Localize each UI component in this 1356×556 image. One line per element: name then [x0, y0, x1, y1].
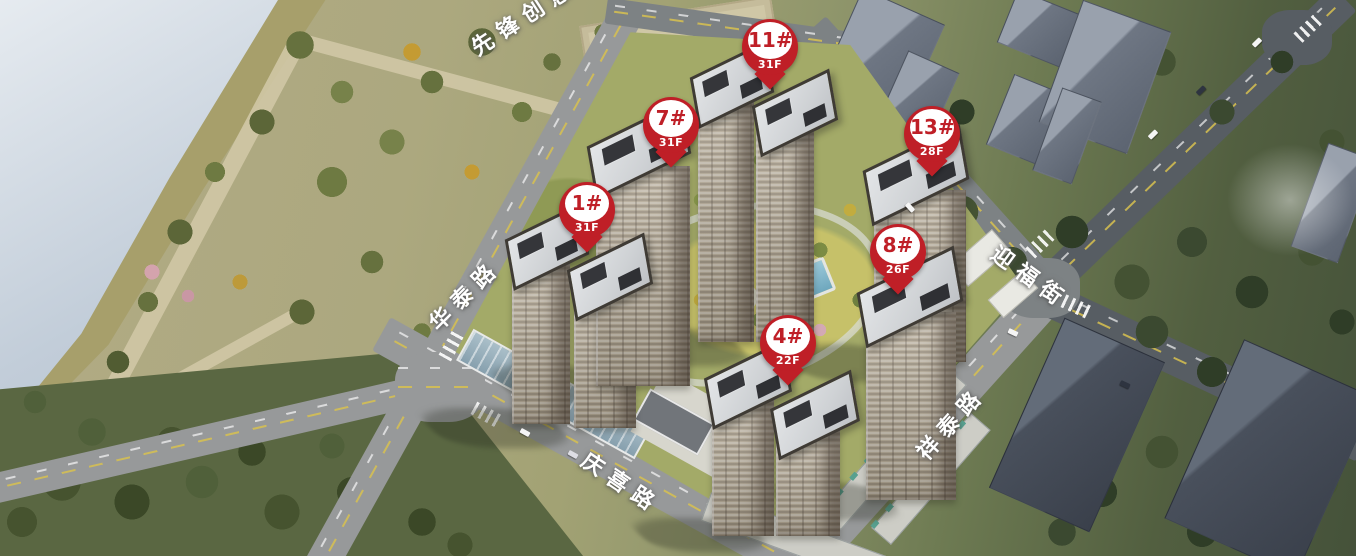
- building-pin[interactable]: 11# 31F: [742, 19, 798, 99]
- car: [1252, 37, 1263, 48]
- pin-floor-count: 28F: [904, 145, 960, 158]
- pin-building-number: 13#: [910, 109, 954, 146]
- masterplan-aerial-scene: 先锋创意 华泰路 迎福街 祥泰路 庆喜路 1# 31F 7# 31F 11# 3…: [0, 0, 1356, 556]
- pin-head: 13# 28F: [904, 106, 960, 162]
- pin-floor-count: 31F: [742, 58, 798, 71]
- park-path: [298, 33, 562, 116]
- pin-building-number: 11#: [748, 22, 792, 59]
- pin-inner-circle: 13#: [910, 109, 954, 146]
- pin-inner-circle: 1#: [565, 185, 609, 222]
- car: [1148, 129, 1159, 140]
- pin-head: 1# 31F: [559, 182, 615, 238]
- building-pin[interactable]: 1# 31F: [559, 182, 615, 262]
- tower-11-facade: [756, 130, 814, 342]
- pin-inner-circle: 7#: [649, 100, 693, 137]
- street-name-label: 先锋创意: [464, 0, 582, 62]
- building-pin[interactable]: 8# 26F: [870, 224, 926, 304]
- pin-inner-circle: 8#: [876, 227, 920, 264]
- pin-head: 7# 31F: [643, 97, 699, 153]
- building-pin[interactable]: 7# 31F: [643, 97, 699, 177]
- tower-11-facade: [698, 102, 754, 342]
- pin-floor-count: 26F: [870, 263, 926, 276]
- pin-floor-count: 22F: [760, 354, 816, 367]
- pin-inner-circle: 4#: [766, 318, 810, 355]
- pin-building-number: 8#: [876, 227, 920, 264]
- pin-building-number: 1#: [565, 185, 609, 222]
- crosswalk: [1025, 228, 1056, 259]
- tower-1-facade: [512, 264, 570, 424]
- building-pin[interactable]: 4# 22F: [760, 315, 816, 395]
- pin-inner-circle: 11#: [748, 22, 792, 59]
- building-pin[interactable]: 13# 28F: [904, 106, 960, 186]
- pin-head: 4# 22F: [760, 315, 816, 371]
- pin-floor-count: 31F: [643, 136, 699, 149]
- pin-floor-count: 31F: [559, 221, 615, 234]
- pin-head: 11# 31F: [742, 19, 798, 75]
- car: [1196, 85, 1207, 96]
- pin-building-number: 7#: [649, 100, 693, 137]
- pin-building-number: 4#: [766, 318, 810, 355]
- atmosphere-haze: [1200, 120, 1356, 280]
- pin-head: 8# 26F: [870, 224, 926, 280]
